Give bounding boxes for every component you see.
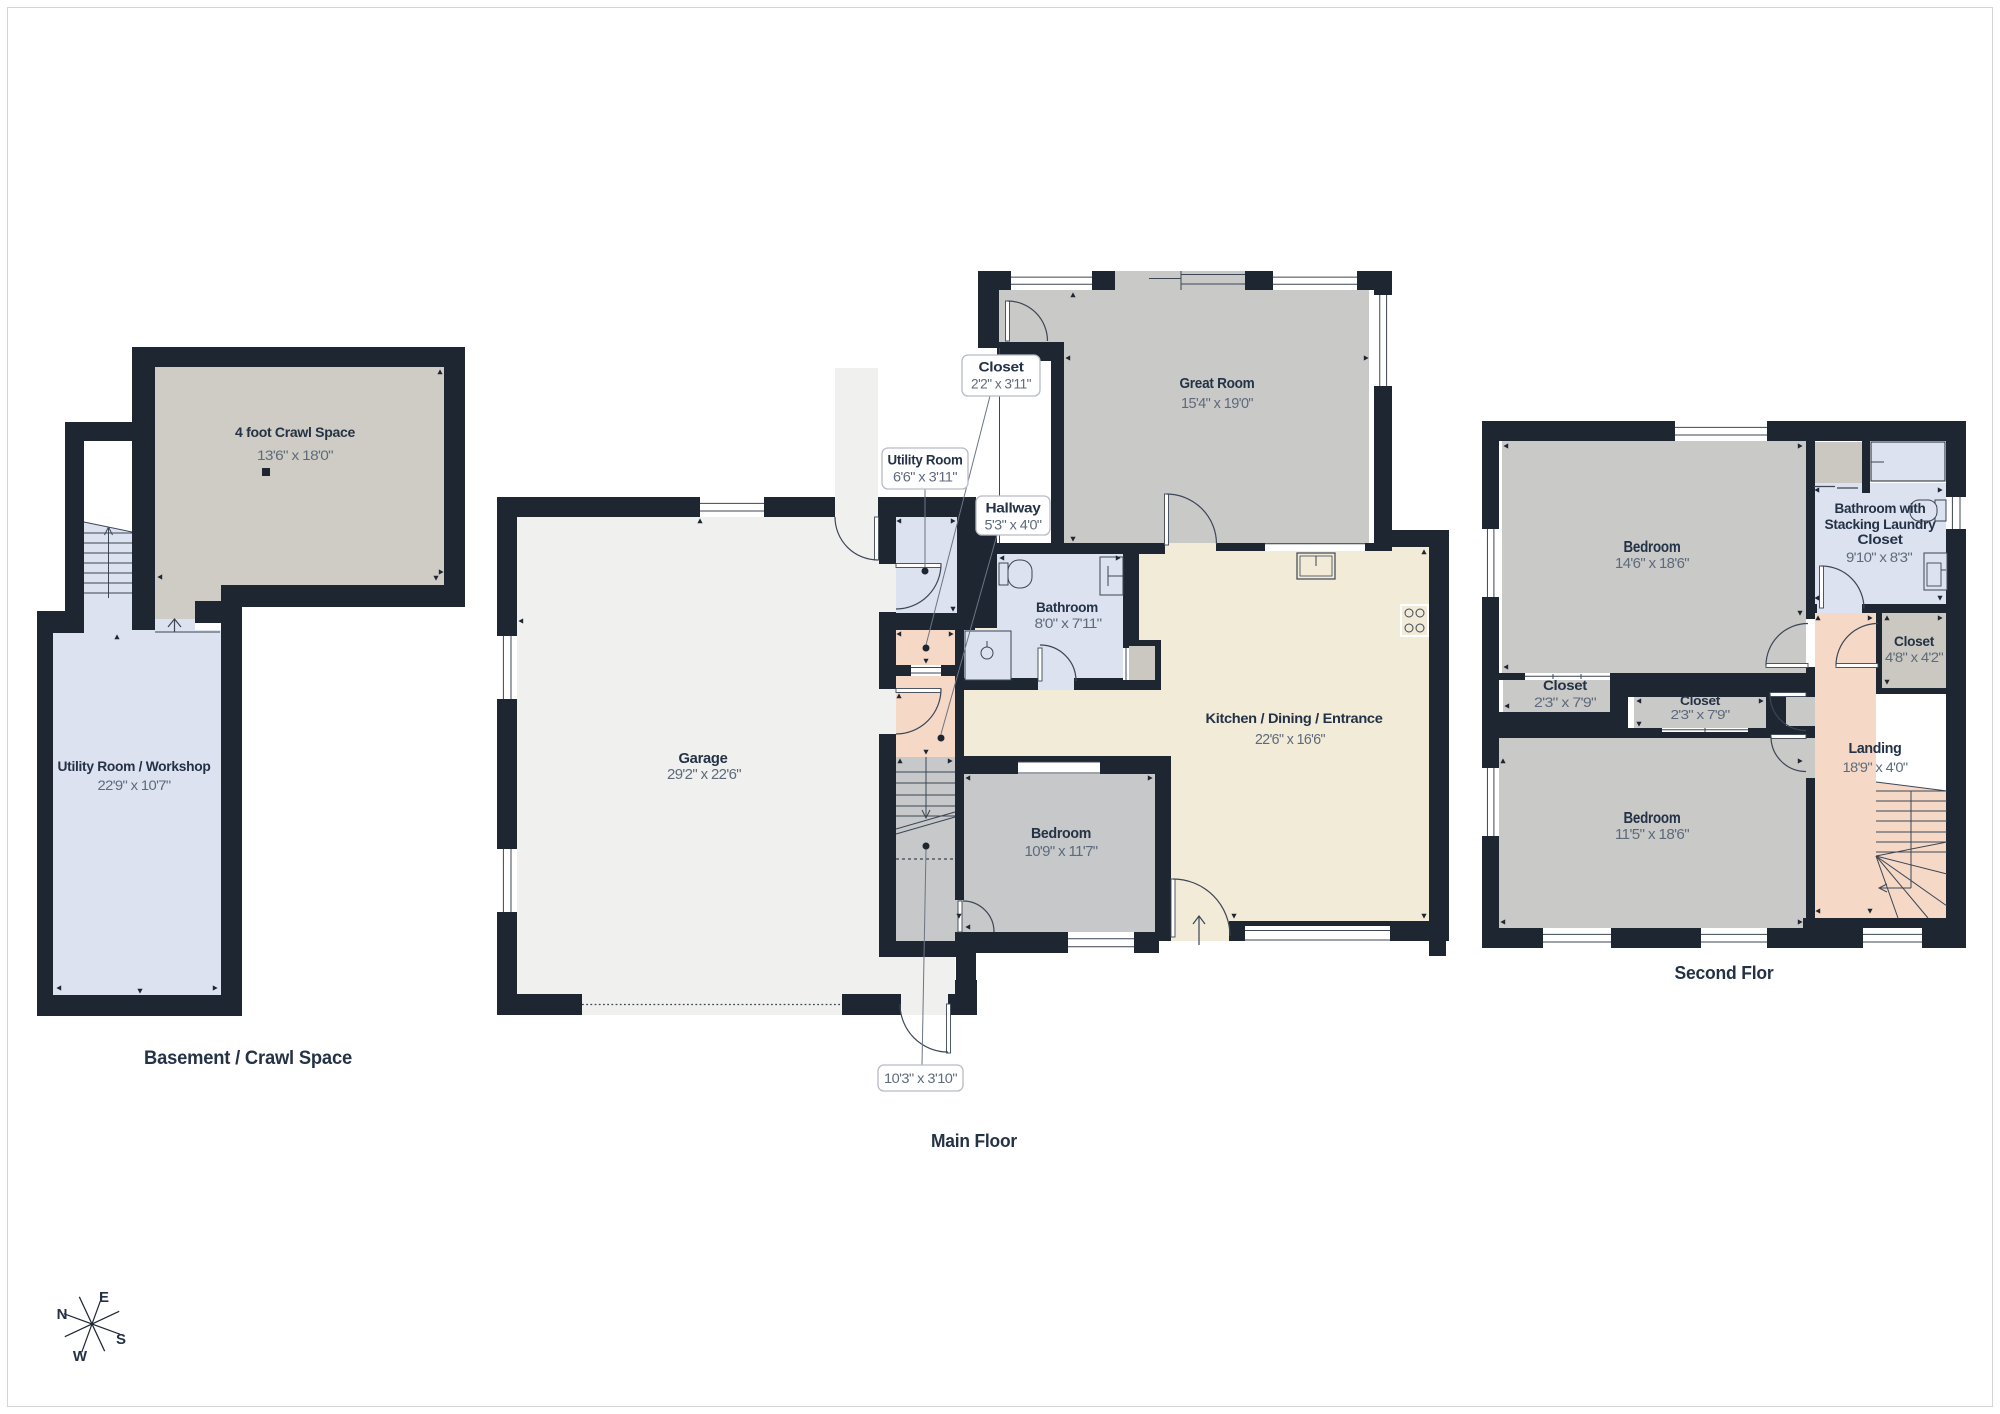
svg-text:S: S bbox=[116, 1331, 126, 1348]
svg-text:9'10" x 8'3": 9'10" x 8'3" bbox=[1846, 550, 1913, 565]
svg-text:Garage: Garage bbox=[679, 751, 728, 767]
svg-text:15'4" x 19'0": 15'4" x 19'0" bbox=[1181, 395, 1253, 412]
svg-text:2'2" x 3'11": 2'2" x 3'11" bbox=[971, 377, 1032, 392]
svg-text:Utility Room / Workshop: Utility Room / Workshop bbox=[58, 759, 211, 774]
svg-text:Closet: Closet bbox=[1894, 634, 1935, 649]
svg-text:Basement / Crawl Space: Basement / Crawl Space bbox=[144, 1048, 352, 1069]
svg-text:8'0" x 7'11": 8'0" x 7'11" bbox=[1035, 616, 1103, 631]
svg-text:10'9" x 11'7": 10'9" x 11'7" bbox=[1025, 844, 1098, 860]
svg-text:E: E bbox=[99, 1289, 109, 1306]
svg-text:11'5" x 18'6": 11'5" x 18'6" bbox=[1615, 826, 1689, 843]
svg-text:22'6" x 16'6": 22'6" x 16'6" bbox=[1255, 732, 1325, 748]
svg-text:Closet: Closet bbox=[1680, 694, 1721, 708]
svg-text:Bathroom with: Bathroom with bbox=[1835, 501, 1926, 516]
svg-text:Hallway: Hallway bbox=[986, 500, 1042, 516]
svg-text:Closet: Closet bbox=[1543, 677, 1588, 693]
svg-text:14'6" x 18'6": 14'6" x 18'6" bbox=[1615, 555, 1689, 572]
svg-text:10'3" x 3'10": 10'3" x 3'10" bbox=[884, 1071, 958, 1086]
svg-text:Kitchen / Dining / Entrance: Kitchen / Dining / Entrance bbox=[1206, 710, 1384, 726]
svg-text:2'3" x 7'9": 2'3" x 7'9" bbox=[1534, 694, 1597, 710]
svg-text:Stacking Laundry: Stacking Laundry bbox=[1825, 517, 1937, 532]
svg-text:Closet: Closet bbox=[979, 359, 1025, 375]
svg-text:Closet: Closet bbox=[1858, 532, 1904, 547]
svg-text:Main Floor: Main Floor bbox=[931, 1131, 1017, 1151]
svg-text:6'6" x 3'11": 6'6" x 3'11" bbox=[893, 470, 958, 485]
svg-text:22'9" x 10'7": 22'9" x 10'7" bbox=[98, 777, 172, 793]
svg-text:29'2" x 22'6": 29'2" x 22'6" bbox=[667, 767, 741, 783]
svg-text:5'3" x 4'0": 5'3" x 4'0" bbox=[985, 518, 1043, 533]
svg-text:4'8" x 4'2": 4'8" x 4'2" bbox=[1885, 650, 1944, 665]
svg-text:13'6" x 18'0": 13'6" x 18'0" bbox=[257, 447, 334, 463]
svg-text:18'9" x 4'0": 18'9" x 4'0" bbox=[1843, 759, 1909, 775]
svg-text:Bathroom: Bathroom bbox=[1036, 599, 1098, 615]
svg-text:N: N bbox=[57, 1306, 68, 1323]
svg-text:Second Flor: Second Flor bbox=[1675, 963, 1774, 983]
svg-text:W: W bbox=[73, 1348, 88, 1365]
svg-text:Bedroom: Bedroom bbox=[1624, 539, 1681, 556]
svg-text:2'3" x 7'9": 2'3" x 7'9" bbox=[1671, 708, 1730, 722]
svg-text:Landing: Landing bbox=[1849, 741, 1902, 757]
svg-text:4 foot Crawl Space: 4 foot Crawl Space bbox=[235, 425, 356, 440]
svg-text:Great Room: Great Room bbox=[1180, 376, 1255, 392]
svg-text:Bedroom: Bedroom bbox=[1031, 826, 1091, 842]
svg-text:Bedroom: Bedroom bbox=[1624, 810, 1681, 827]
svg-text:Utility Room: Utility Room bbox=[888, 452, 963, 468]
